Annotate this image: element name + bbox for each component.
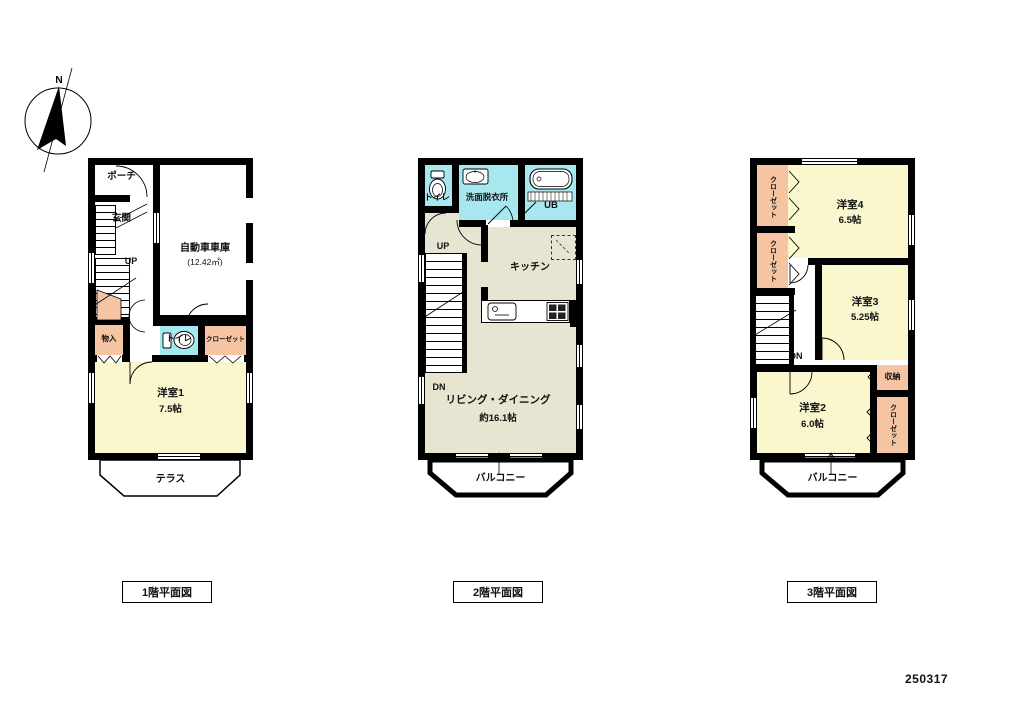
wall — [198, 326, 205, 355]
closet2-label: クローゼット — [761, 236, 785, 286]
hall-door-arc — [129, 300, 145, 316]
floorplan-sheet: N — [0, 0, 1024, 724]
room4-label: 洋室4 — [795, 198, 905, 214]
closet-label: クローゼット — [205, 335, 246, 345]
garage-area-label: (12.42㎡) — [160, 256, 250, 269]
storage-label: 収納 — [877, 371, 908, 383]
wall — [246, 280, 253, 460]
compass-north-icon: N — [20, 64, 96, 176]
wall — [463, 253, 467, 373]
floor1-plan: ポーチ 玄関 UP 自動車車庫 (12.42㎡) 物入 トイレ クローゼット 洋… — [88, 158, 253, 503]
wall — [418, 453, 583, 460]
door-opening — [486, 220, 510, 227]
washroom-label: 洗面脱衣所 — [454, 191, 520, 204]
entrance-label: 玄関 — [95, 212, 148, 226]
folding-door-opening — [208, 355, 244, 362]
window — [576, 260, 583, 284]
window — [908, 215, 915, 245]
floor2-caption: 2階平面図 — [453, 581, 543, 603]
door-opening — [130, 355, 152, 362]
window — [908, 300, 915, 330]
folding-door-opening — [97, 355, 122, 362]
document-number: 250317 — [905, 672, 948, 686]
room2-label: 洋室2 — [765, 401, 860, 417]
wall — [481, 225, 488, 262]
balcony-door — [456, 453, 488, 460]
wall — [815, 265, 822, 360]
balcony-label: バルコニー — [790, 472, 875, 485]
window — [246, 373, 253, 403]
refrigerator-space — [551, 235, 576, 260]
room2-size-label: 6.0帖 — [765, 418, 860, 432]
wall — [153, 315, 253, 326]
compass-n-label: N — [55, 75, 62, 86]
wall — [870, 365, 877, 453]
terrace-door — [158, 453, 200, 460]
wall — [481, 287, 488, 300]
floor1-caption: 1階平面図 — [122, 581, 212, 603]
room4-size-label: 6.5帖 — [795, 214, 905, 228]
window — [576, 405, 583, 429]
up-label: UP — [430, 241, 456, 253]
bath-label: UB — [536, 200, 566, 213]
window — [576, 345, 583, 367]
living-label: リビング・ダイニング — [428, 393, 568, 409]
wall — [88, 158, 95, 460]
toilet-label: トイレ — [160, 333, 198, 345]
garage-label: 自動車車庫 — [160, 240, 250, 256]
wall — [418, 206, 459, 213]
window — [418, 255, 425, 282]
hall-door-arc — [129, 316, 145, 332]
floor3-caption-text: 3階平面図 — [807, 584, 857, 600]
room1-label: 洋室1 — [95, 386, 246, 402]
wall — [418, 158, 583, 165]
room3-size-label: 5.25帖 — [822, 311, 908, 325]
wall — [808, 258, 915, 265]
folding-door-symbol — [789, 263, 799, 285]
closet3-label: クローゼット — [881, 400, 905, 450]
window — [88, 373, 95, 403]
wall — [750, 288, 795, 295]
toilet-label: トイレ — [418, 192, 456, 204]
room4-door-arc — [790, 265, 808, 283]
wall — [750, 226, 795, 233]
balcony-door — [805, 453, 855, 460]
window — [418, 377, 425, 404]
living-size-label: 約16.1帖 — [428, 412, 568, 426]
wall — [750, 365, 877, 372]
wall — [88, 158, 253, 165]
balcony-door — [510, 453, 542, 460]
wall — [459, 220, 576, 227]
room3-label: 洋室3 — [822, 295, 908, 311]
down-label: DN — [783, 351, 809, 363]
floor2-plan: トイレ 洗面脱衣所 UB キッチン UP DN リビング・ダイニング 約16.1… — [418, 158, 583, 503]
wall — [95, 195, 130, 202]
kitchen-label: キッチン — [498, 260, 562, 274]
window — [750, 398, 757, 428]
wall — [570, 300, 576, 327]
window — [153, 213, 160, 243]
floor2-caption-text: 2階平面図 — [473, 584, 523, 600]
porch-label: ポーチ — [95, 170, 148, 184]
floor1-caption-text: 1階平面図 — [142, 584, 192, 600]
floor3-caption: 3階平面図 — [787, 581, 877, 603]
wall — [877, 390, 915, 397]
window — [802, 158, 857, 165]
window — [88, 253, 95, 283]
floor3-plan: クローゼット クローゼット 洋室4 6.5帖 洋室3 5.25帖 DN 洋室2 … — [750, 158, 915, 503]
up-label: UP — [118, 256, 144, 268]
balcony-label: バルコニー — [458, 472, 543, 485]
stairs — [425, 253, 463, 373]
terrace-label: テラス — [128, 472, 213, 486]
kitchen-counter — [481, 300, 570, 323]
room1-size-label: 7.5帖 — [95, 403, 246, 417]
storage-label: 物入 — [95, 333, 123, 345]
closet1-label: クローゼット — [761, 170, 785, 223]
wall — [246, 158, 253, 198]
